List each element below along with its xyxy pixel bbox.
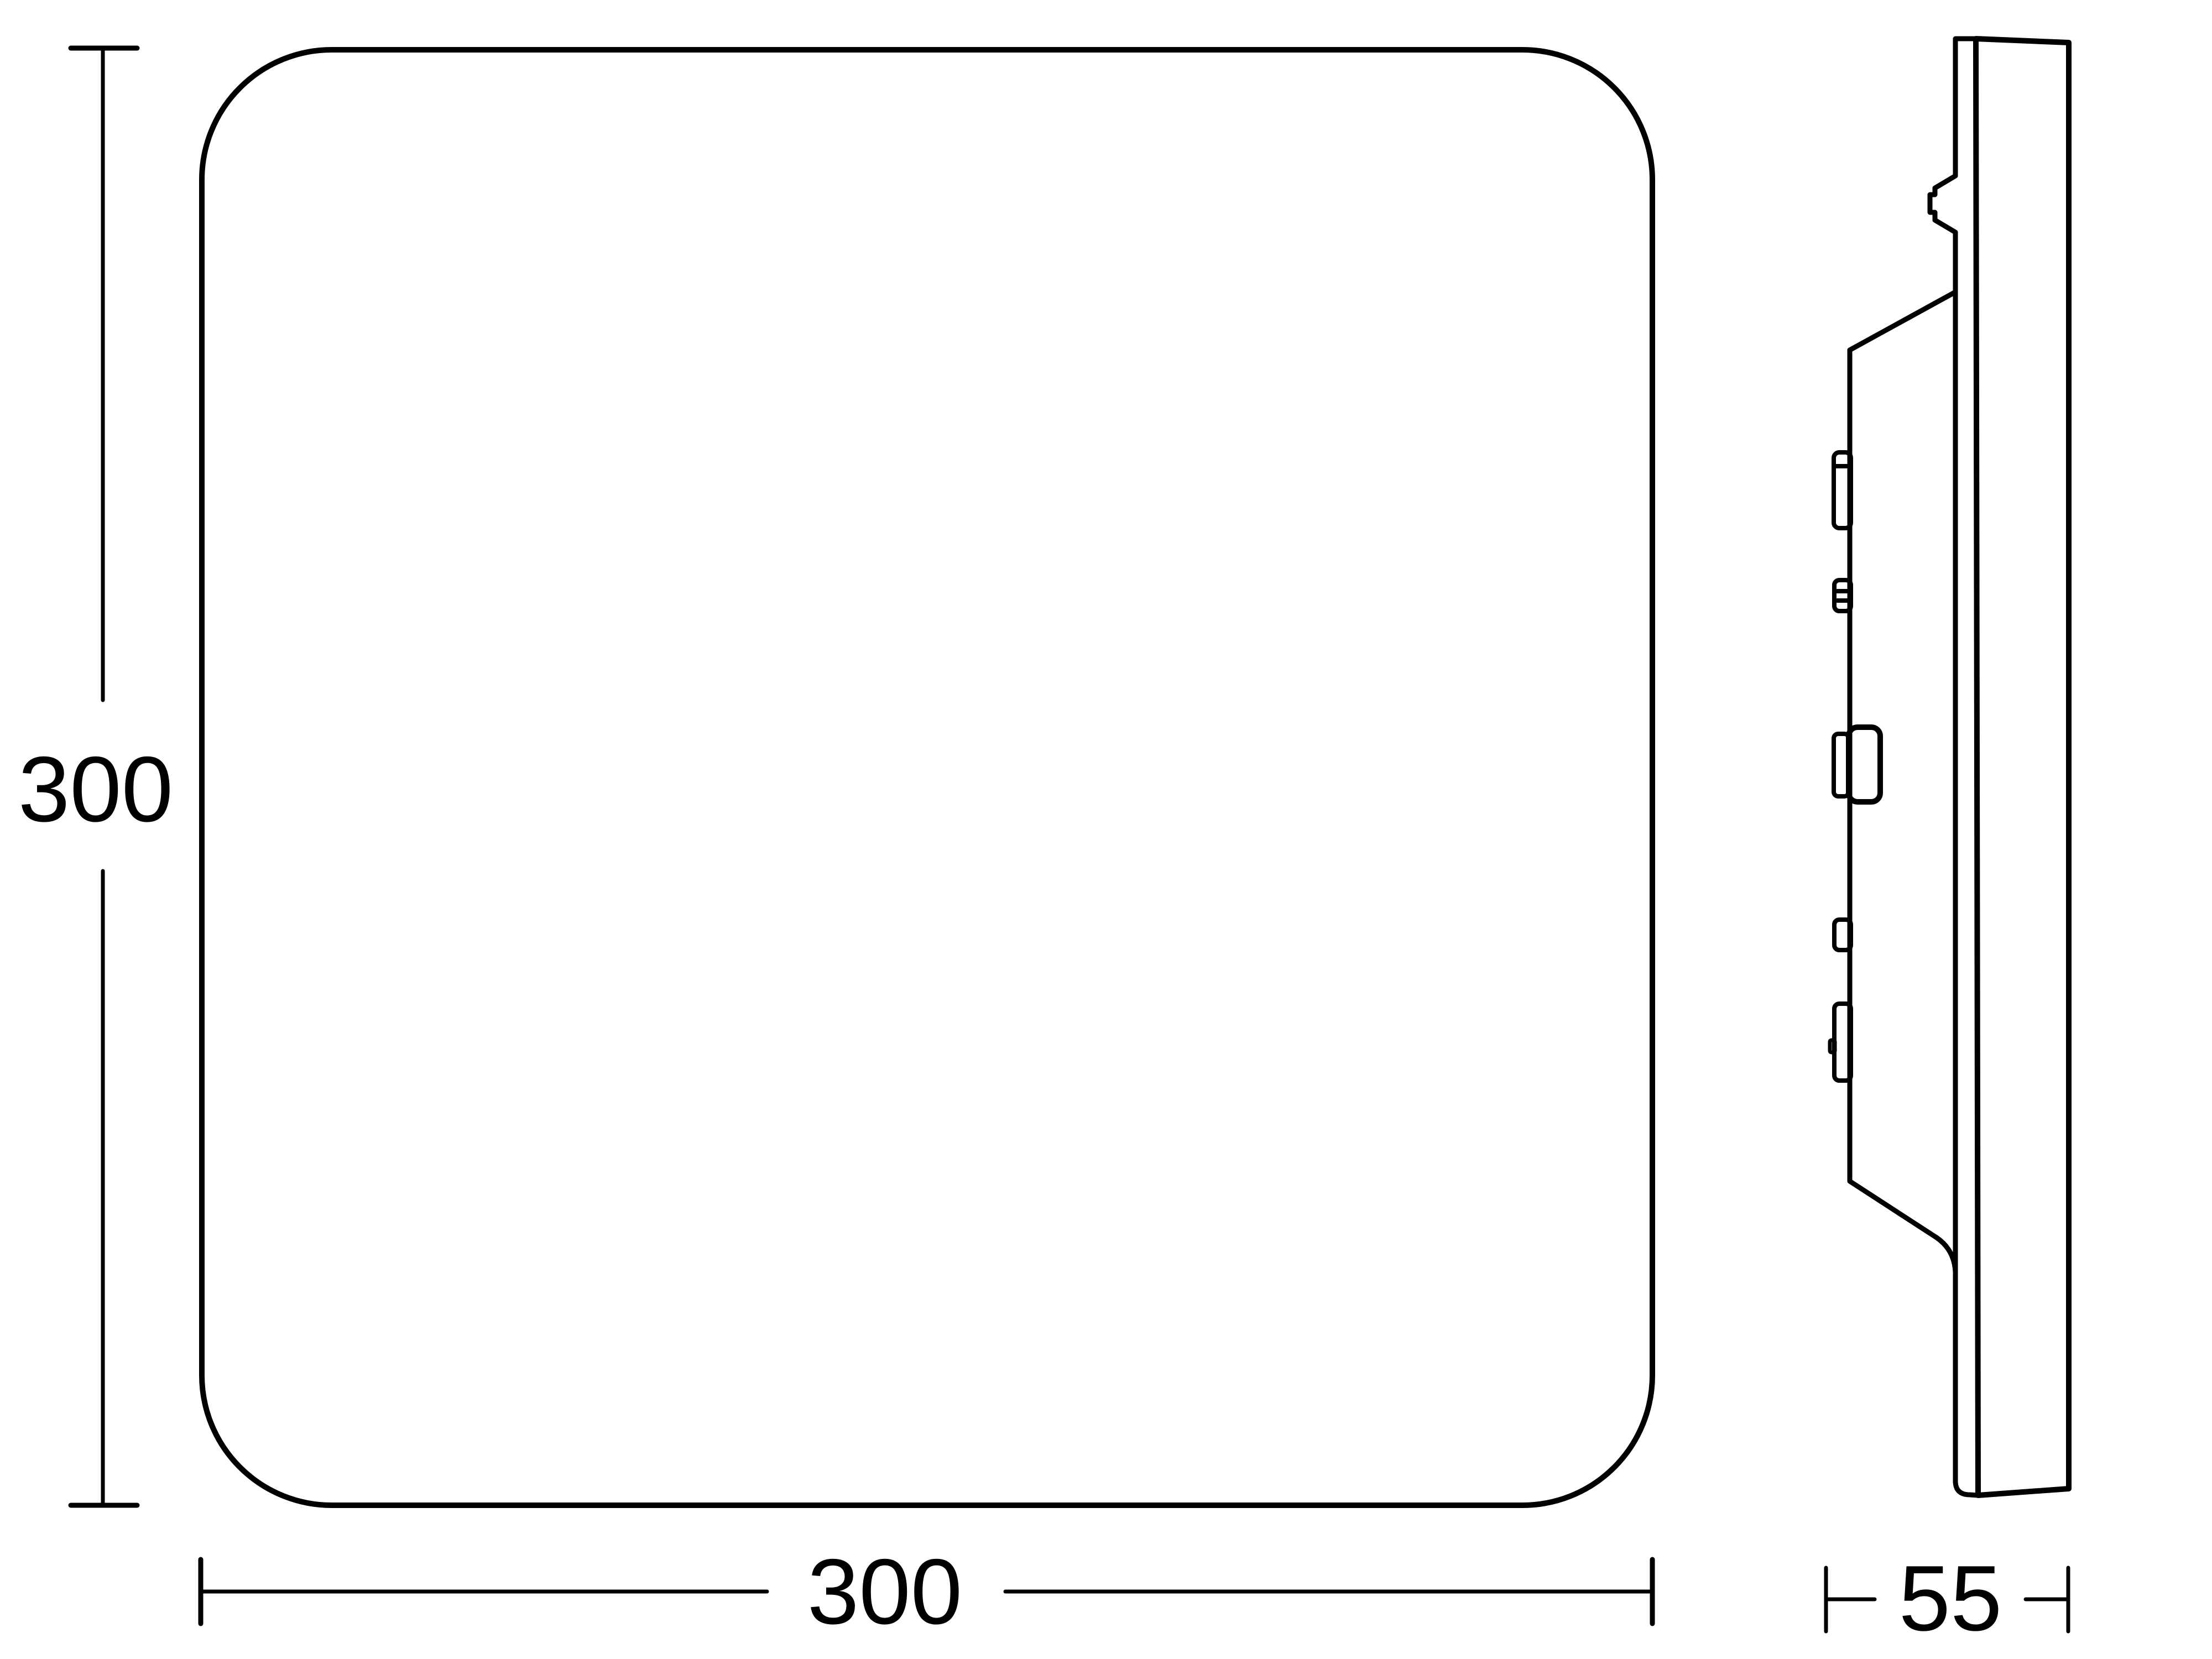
side-view: [1830, 39, 2069, 1495]
side-view-mounting-plate: [1930, 39, 1978, 1495]
side-view-bracket: [1850, 292, 1955, 1272]
width-dimension-label: 300: [807, 1540, 962, 1644]
dimension-drawing: 300 300 55: [0, 0, 2212, 1659]
depth-dimension-label: 55: [1899, 1546, 2002, 1650]
depth-dimension: 55: [1826, 1546, 2068, 1650]
height-dimension-label: 300: [18, 737, 173, 841]
side-view-cover: [1976, 39, 2069, 1495]
front-view-outline: [202, 50, 1652, 1505]
height-dimension: 300: [18, 48, 173, 1505]
width-dimension: 300: [201, 1540, 1652, 1644]
side-view-clip-3-box: [1849, 727, 1880, 802]
front-view: [202, 50, 1652, 1505]
